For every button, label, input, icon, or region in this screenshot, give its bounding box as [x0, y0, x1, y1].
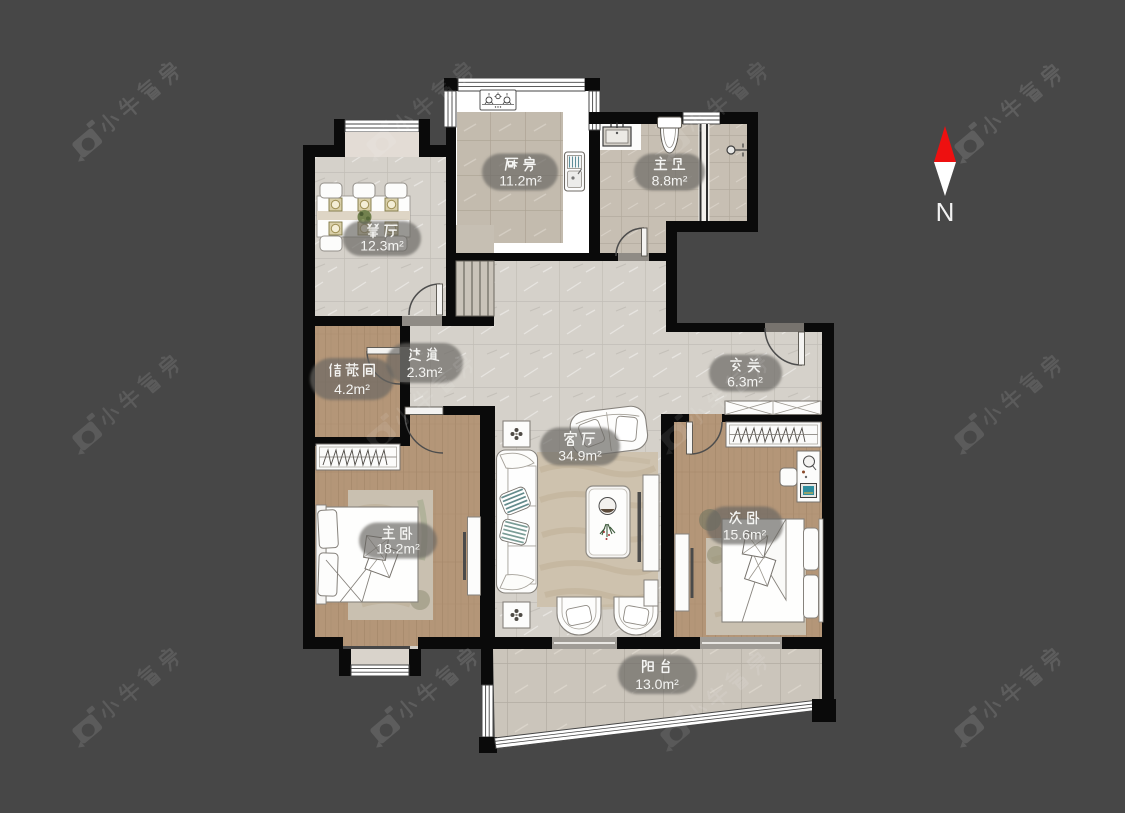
svg-text:13.0m²: 13.0m² — [635, 676, 679, 692]
svg-text:N: N — [936, 197, 955, 227]
svg-text:34.9m²: 34.9m² — [558, 448, 602, 464]
svg-text:12.3m²: 12.3m² — [360, 238, 404, 254]
svg-text:15.6m²: 15.6m² — [723, 527, 767, 543]
svg-text:8.8m²: 8.8m² — [652, 173, 688, 189]
svg-text:4.2m²: 4.2m² — [334, 381, 370, 397]
svg-text:11.2m²: 11.2m² — [499, 173, 542, 189]
svg-text:18.2m²: 18.2m² — [376, 541, 420, 557]
